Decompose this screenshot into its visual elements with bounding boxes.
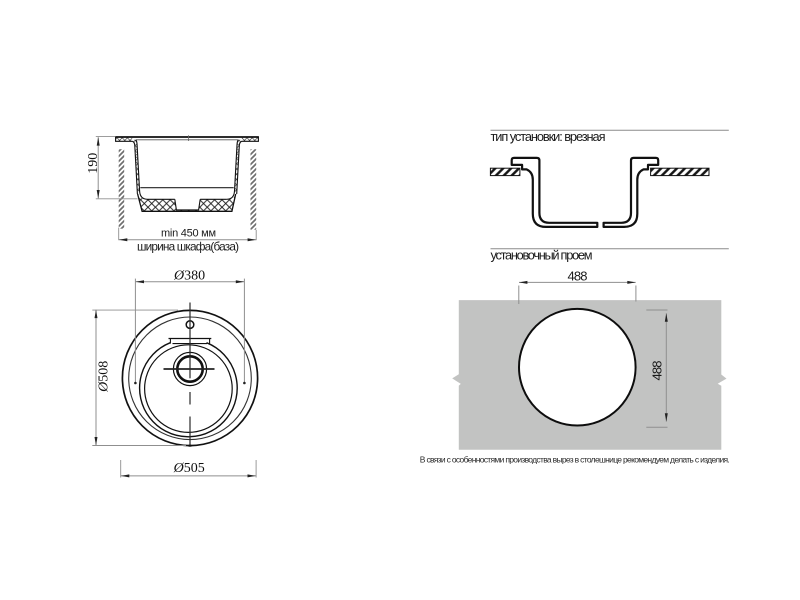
svg-text:Ø505: Ø505 xyxy=(173,461,205,476)
svg-text:488: 488 xyxy=(568,268,588,283)
svg-text:488: 488 xyxy=(650,361,665,381)
svg-text:ширина шкафа(база): ширина шкафа(база) xyxy=(137,240,239,254)
svg-text:установочный проем: установочный проем xyxy=(491,248,593,263)
svg-text:Ø508: Ø508 xyxy=(97,361,112,393)
svg-text:тип установки: врезная: тип установки: врезная xyxy=(491,129,606,144)
svg-text:min 450 мм: min 450 мм xyxy=(161,227,216,239)
svg-text:190: 190 xyxy=(86,153,101,174)
svg-text:В связи с особенностями произв: В связи с особенностями производства выр… xyxy=(420,454,730,464)
svg-text:Ø380: Ø380 xyxy=(173,268,205,283)
